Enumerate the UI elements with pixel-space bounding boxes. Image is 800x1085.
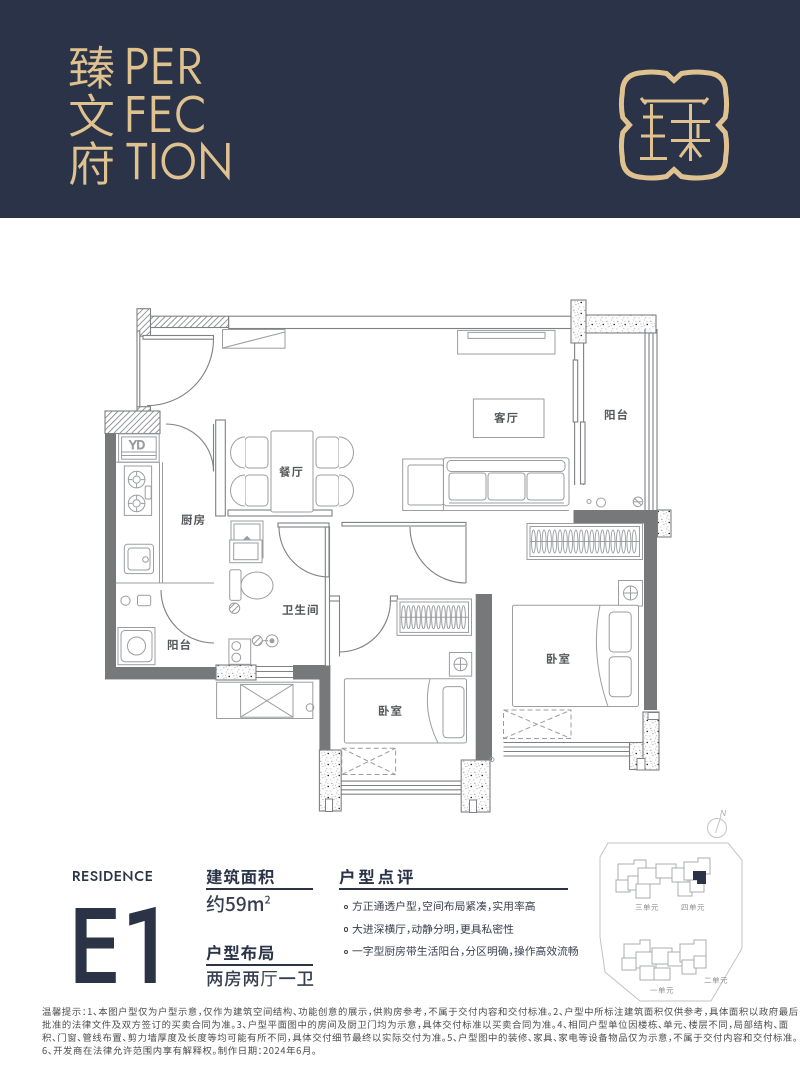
svg-text:卧室: 卧室 xyxy=(546,651,571,667)
svg-text:一单元: 一单元 xyxy=(650,985,674,996)
svg-text:餐厅: 餐厅 xyxy=(279,464,304,480)
svg-text:YD: YD xyxy=(129,440,145,452)
svg-text:厨房: 厨房 xyxy=(181,512,206,528)
svg-text:卧室: 卧室 xyxy=(378,703,403,719)
svg-text:阳台: 阳台 xyxy=(167,637,192,653)
svg-text:三单元: 三单元 xyxy=(635,902,659,913)
svg-text:二单元: 二单元 xyxy=(704,975,728,986)
svg-text:N: N xyxy=(720,808,727,818)
svg-text:阳台: 阳台 xyxy=(604,407,629,423)
svg-text:四单元: 四单元 xyxy=(681,902,705,913)
svg-text:卫生间: 卫生间 xyxy=(282,602,320,618)
svg-text:客厅: 客厅 xyxy=(494,410,519,426)
